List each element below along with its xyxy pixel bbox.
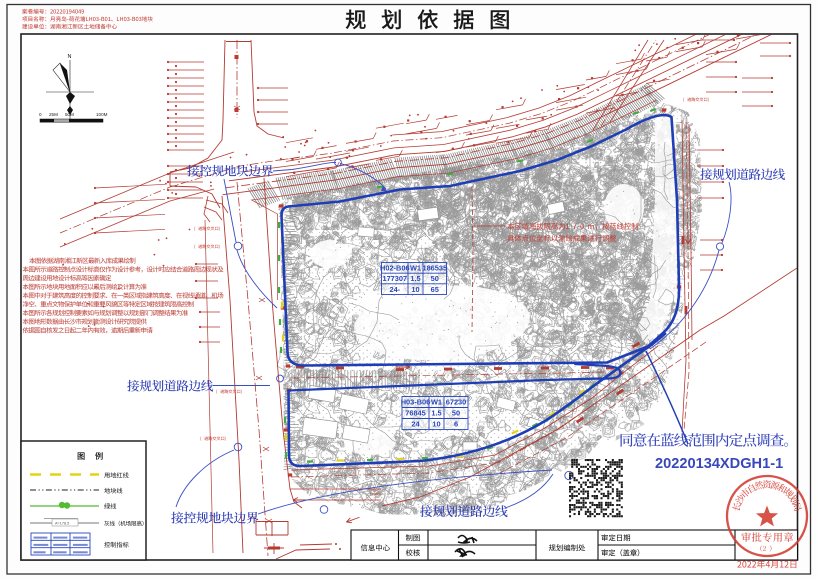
svg-text:25M: 25M	[49, 112, 58, 117]
svg-text:20220134XDGH1-1: 20220134XDGH1-1	[655, 456, 783, 472]
svg-text:10: 10	[432, 420, 440, 429]
svg-text:186535: 186535	[422, 264, 447, 273]
svg-text:50M: 50M	[65, 112, 74, 117]
svg-text:W1: W1	[410, 264, 421, 273]
svg-text:50: 50	[452, 409, 460, 418]
svg-text:H03-B06: H03-B06	[401, 398, 431, 407]
svg-text:1.5: 1.5	[431, 409, 441, 418]
svg-text:1.5: 1.5	[410, 274, 420, 283]
svg-text:0: 0	[39, 112, 42, 117]
svg-text:24: 24	[411, 420, 420, 429]
svg-text:177307: 177307	[382, 274, 407, 283]
svg-text:50: 50	[431, 274, 439, 283]
svg-text:24-: 24-	[389, 285, 400, 294]
svg-text:H02-B06: H02-B06	[380, 264, 410, 273]
svg-text:65: 65	[431, 285, 439, 294]
svg-text:100M: 100M	[96, 112, 108, 117]
svg-text:W1: W1	[431, 398, 442, 407]
svg-text:6: 6	[454, 420, 458, 429]
svg-text:N: N	[68, 54, 72, 60]
svg-text:76845: 76845	[405, 409, 426, 418]
svg-text:10: 10	[411, 285, 419, 294]
svg-text:A=178.5: A=178.5	[55, 522, 69, 526]
svg-text:67230: 67230	[446, 398, 467, 407]
